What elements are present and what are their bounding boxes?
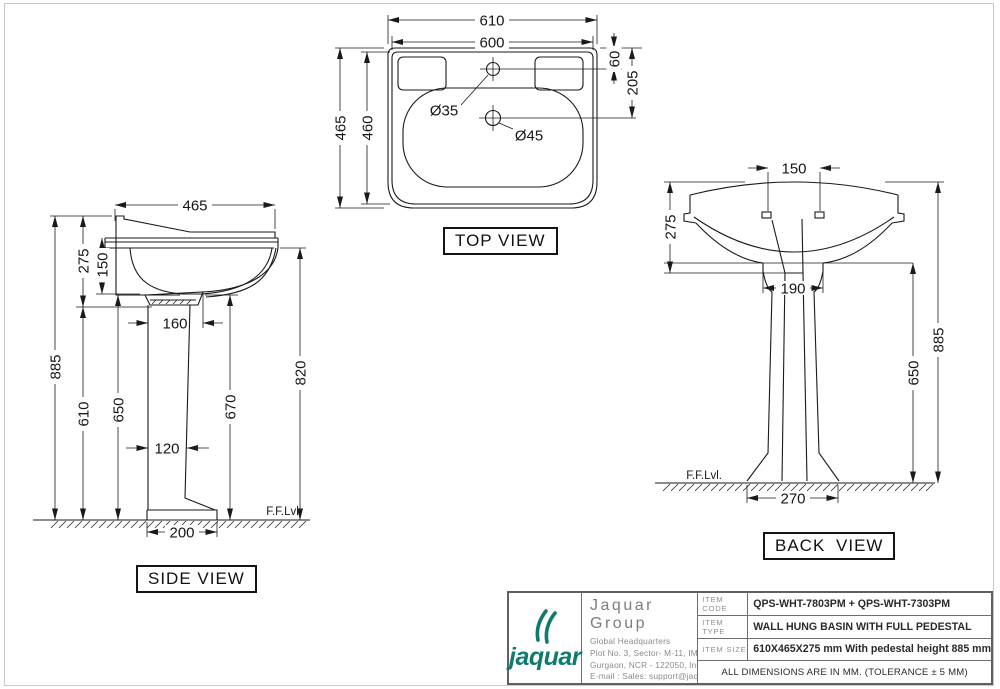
dim-body-depth: 460 <box>359 115 376 140</box>
address-line: E-mail : Sales: support@jaquar.com <box>590 671 691 683</box>
dim-pedestal-width: 120 <box>154 440 179 457</box>
floor-level-label-back: F.F.Lvl. <box>686 470 722 482</box>
dim-basin-height: 275 <box>75 248 92 273</box>
pedestal-column-lines <box>782 273 807 481</box>
dim-tap-hole-offset: 60 <box>606 51 623 68</box>
dim-pedestal-height: 650 <box>110 397 127 422</box>
floor-level-label-side: F.F.Lvl. <box>266 506 302 518</box>
tolerance-note: ALL DIMENSIONS ARE IN MM. (TOLERANCE ± 5… <box>698 661 991 683</box>
soap-tray-right <box>535 57 583 90</box>
back-view-label: BACK VIEW <box>763 532 895 560</box>
drain-funnel <box>772 219 803 273</box>
dim-waste-hole-dia: Ø45 <box>515 127 543 144</box>
item-type-label: ITEM TYPE <box>698 616 748 638</box>
basin-outline-back <box>684 182 904 481</box>
back-view-dimensions: 150 275 190 650 885 270 F.F.Lvl. <box>662 160 947 507</box>
dim-outer-depth: 465 <box>332 115 349 140</box>
drawing-sheet: 610 600 465 460 60 205 Ø35 Ø45 TOP VIEW <box>0 0 1000 689</box>
dim-drain-width: 160 <box>162 315 187 332</box>
dim-rim-height: 820 <box>292 360 309 385</box>
dim-lower-height: 610 <box>75 401 92 426</box>
company-name: Jaquar Group <box>590 597 691 633</box>
dim-basin-depth: 465 <box>182 197 207 214</box>
dim-waste-hole-offset: 205 <box>624 70 641 95</box>
item-table: ITEM CODE QPS-WHT-7803PM + QPS-WHT-7303P… <box>698 593 991 683</box>
leader-tap-hole <box>461 75 488 105</box>
item-row: ITEM CODE QPS-WHT-7803PM + QPS-WHT-7303P… <box>698 593 991 616</box>
leader-waste-hole <box>499 123 513 129</box>
back-view-drawing: 150 275 190 650 885 270 F.F.Lvl. <box>650 155 970 570</box>
dim-base-depth: 200 <box>169 524 194 541</box>
basin-outline-side <box>105 216 278 520</box>
item-code-label: ITEM CODE <box>698 593 748 615</box>
dim-basin-height-back: 275 <box>662 214 679 239</box>
brand-wordmark: jaquar <box>509 645 581 670</box>
dim-outer-width: 610 <box>479 12 504 29</box>
jaquar-swoosh-icon <box>526 606 564 644</box>
side-view-dimensions: 465 885 275 150 610 650 160 120 <box>47 197 309 541</box>
title-block: jaquar Jaquar Group Global Headquarters … <box>507 591 993 685</box>
pedestal-base <box>147 510 217 520</box>
item-size-value: 610X465X275 mm With pedestal height 885 … <box>748 639 991 661</box>
pedestal-left-edge <box>747 263 772 481</box>
brand-logo: jaquar <box>509 593 582 683</box>
dim-overall-height: 885 <box>47 354 64 379</box>
address-line: Gurgaon, NCR - 122050, India <box>590 660 691 672</box>
pedestal-right-edge <box>814 263 839 481</box>
item-row: ITEM TYPE WALL HUNG BASIN WITH FULL PEDE… <box>698 616 991 639</box>
dim-pedestal-height-back: 650 <box>905 360 922 385</box>
top-view-label: TOP VIEW <box>443 227 558 255</box>
dim-overall-height-back: 885 <box>930 327 947 352</box>
dim-tap-hole-dia: Ø35 <box>430 102 458 119</box>
item-size-label: ITEM SIZE <box>698 639 748 661</box>
item-row: ITEM SIZE 610X465X275 mm With pedestal h… <box>698 639 991 662</box>
dim-body-width: 600 <box>479 34 504 51</box>
address-line: Global Headquarters <box>590 636 691 648</box>
item-code-value: QPS-WHT-7803PM + QPS-WHT-7303PM <box>748 593 991 615</box>
pedestal-front-edge <box>185 305 215 510</box>
soap-tray-left <box>398 57 446 90</box>
dim-hole-spacing: 150 <box>781 160 806 177</box>
dim-underside-height: 670 <box>222 394 239 419</box>
dim-base-width: 270 <box>780 490 805 507</box>
dim-bowl-depth: 150 <box>94 252 111 277</box>
side-view-label: SIDE VIEW <box>136 565 257 593</box>
dim-neck-width: 190 <box>780 280 805 297</box>
top-view-dimensions: 610 600 465 460 60 205 Ø35 Ø45 <box>332 12 642 208</box>
address-line: Plot No. 3, Sector- M-11, IMT Manesar <box>590 648 691 660</box>
company-info: Jaquar Group Global Headquarters Plot No… <box>582 593 698 683</box>
fixing-hole-right <box>815 212 824 218</box>
basin-outline-top <box>388 48 636 208</box>
top-view-drawing: 610 600 465 460 60 205 Ø35 Ø45 <box>330 6 660 224</box>
fixing-hole-left <box>762 212 771 218</box>
side-view-drawing: 465 885 275 150 610 650 160 120 <box>30 195 320 605</box>
drain-hatch <box>152 300 191 304</box>
item-type-value: WALL HUNG BASIN WITH FULL PEDESTAL <box>748 616 991 638</box>
